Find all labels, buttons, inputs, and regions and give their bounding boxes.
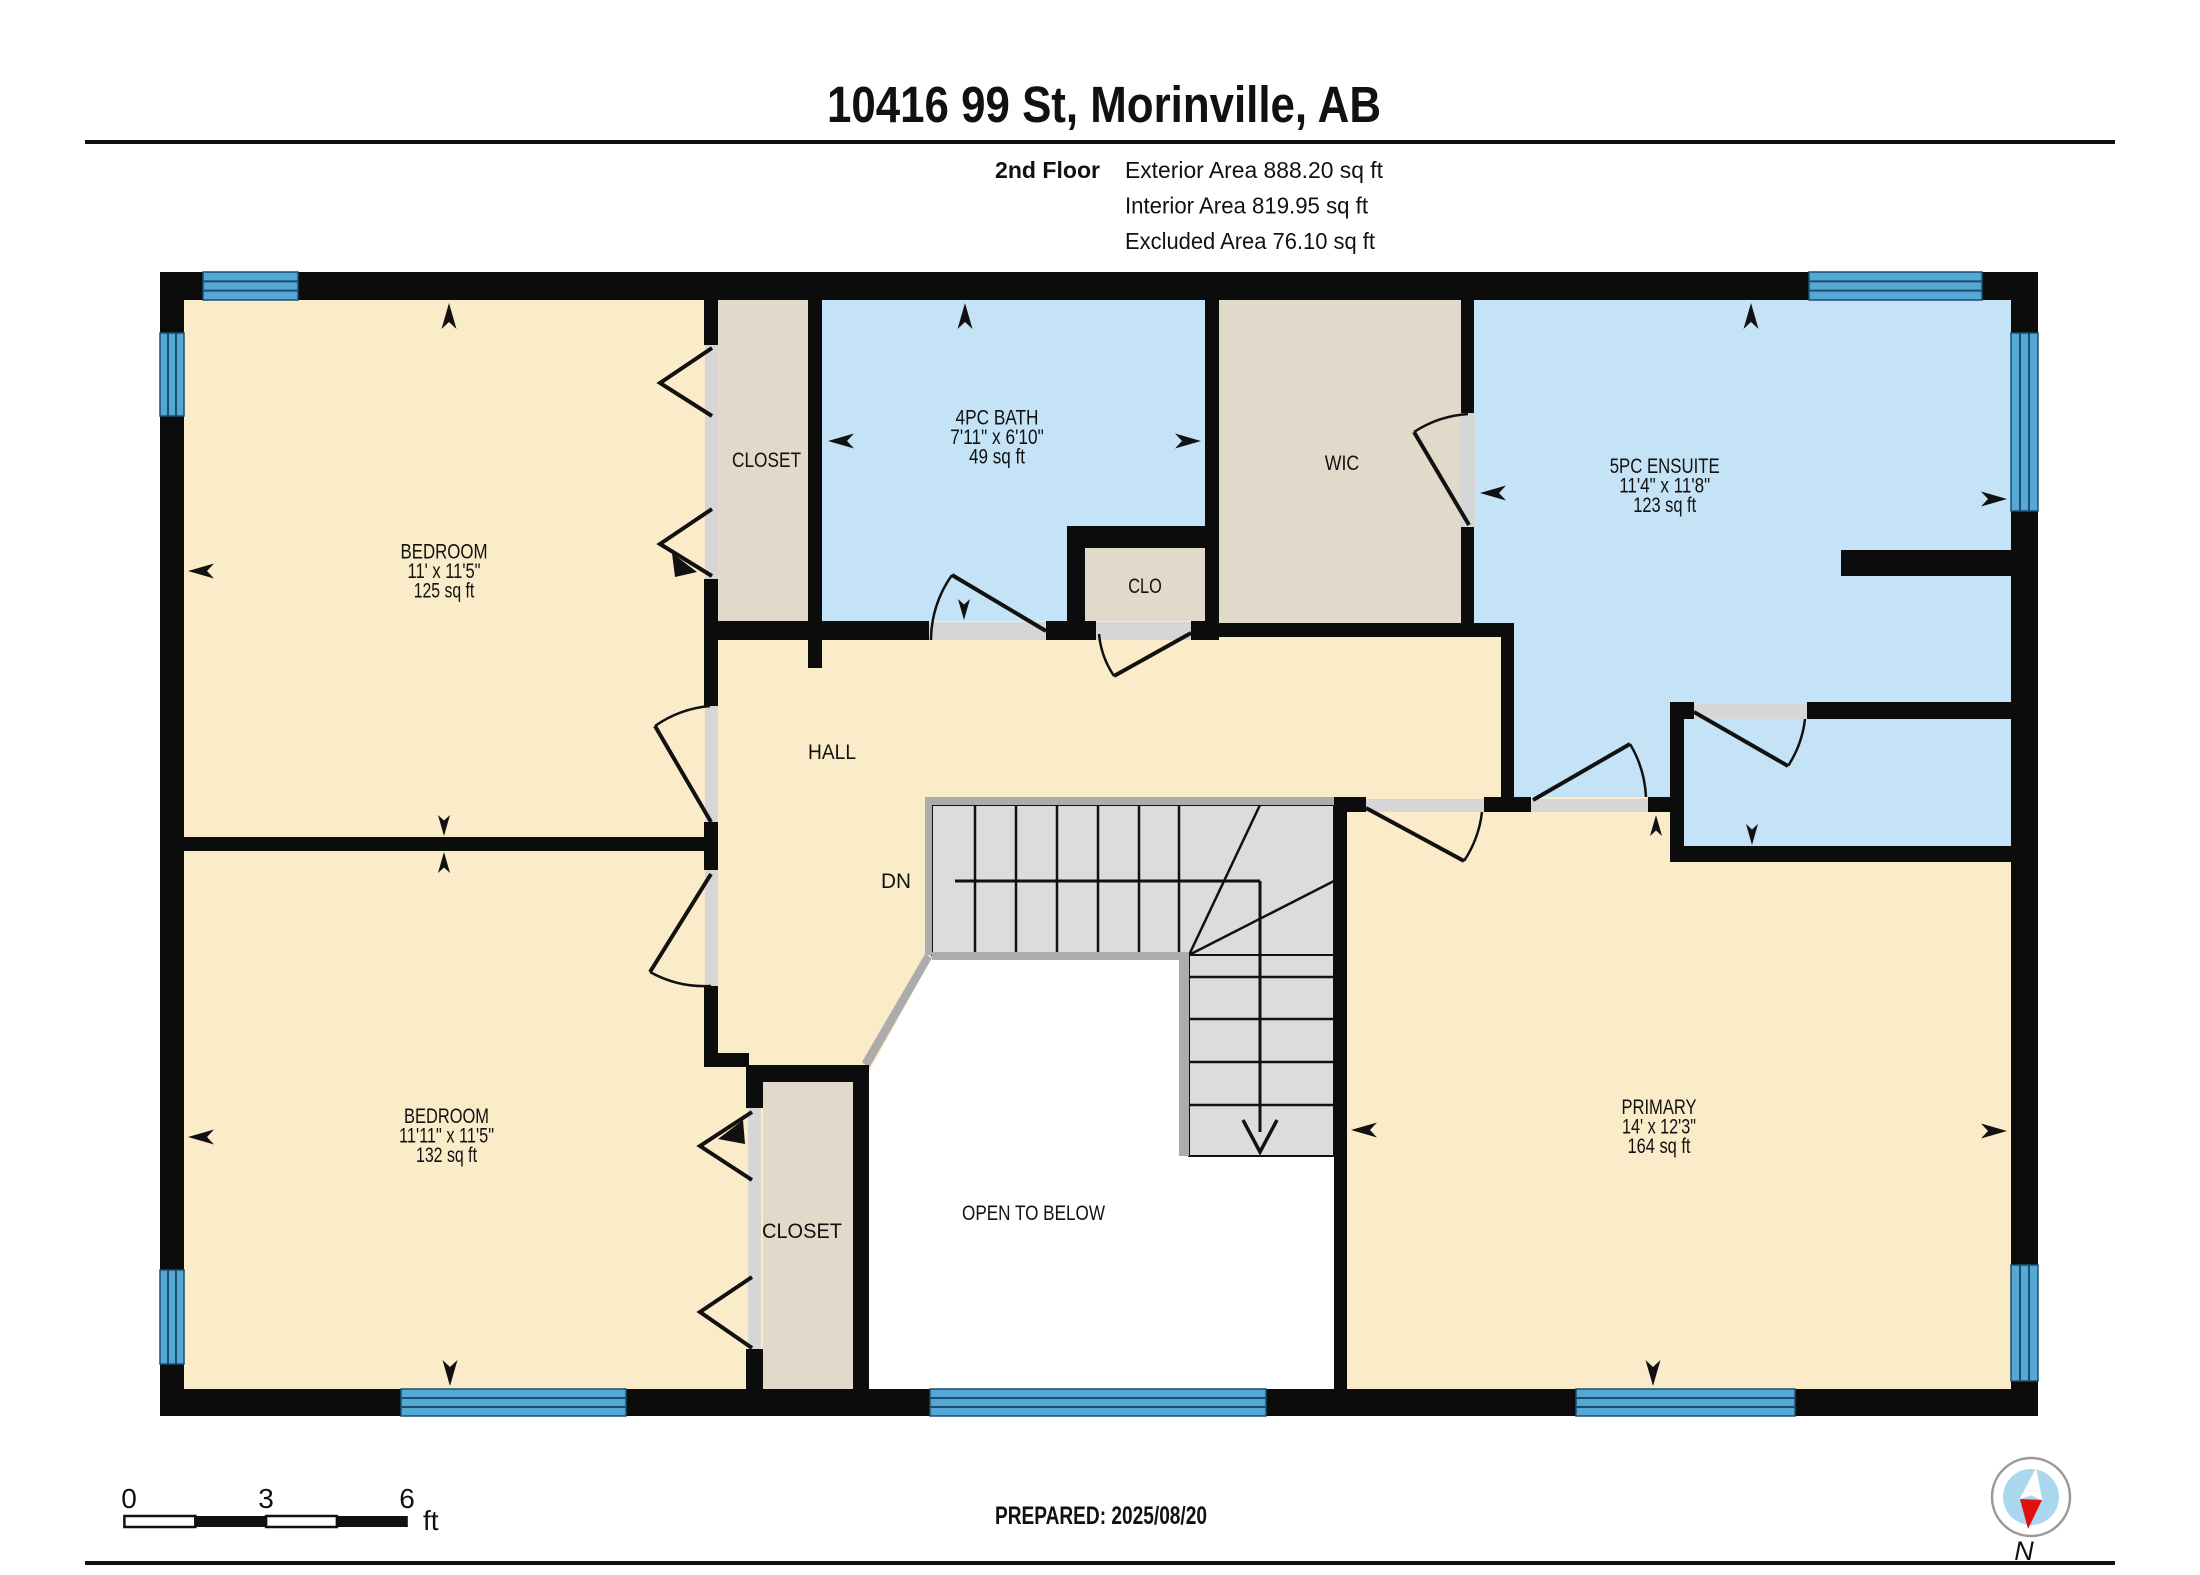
svg-text:123 sq ft: 123 sq ft: [1633, 493, 1696, 517]
svg-text:CLO: CLO: [1128, 574, 1162, 598]
svg-text:164 sq ft: 164 sq ft: [1628, 1134, 1691, 1158]
svg-text:HALL: HALL: [808, 740, 856, 764]
svg-text:DN: DN: [881, 869, 911, 893]
svg-text:132 sq ft: 132 sq ft: [416, 1143, 477, 1167]
svg-text:WIC: WIC: [1325, 451, 1360, 475]
svg-text:OPEN TO BELOW: OPEN TO BELOW: [962, 1201, 1106, 1225]
svg-text:0: 0: [121, 1483, 137, 1514]
svg-text:Interior Area 819.95 sq ft: Interior Area 819.95 sq ft: [1125, 193, 1368, 219]
svg-text:Exterior Area 888.20 sq ft: Exterior Area 888.20 sq ft: [1125, 157, 1383, 183]
svg-text:Excluded Area 76.10 sq ft: Excluded Area 76.10 sq ft: [1125, 228, 1375, 254]
svg-text:CLOSET: CLOSET: [732, 448, 801, 472]
svg-text:6: 6: [399, 1483, 415, 1514]
svg-text:PREPARED: 2025/08/20: PREPARED: 2025/08/20: [995, 1502, 1207, 1530]
svg-text:49 sq ft: 49 sq ft: [969, 444, 1025, 468]
svg-text:CLOSET: CLOSET: [762, 1219, 842, 1243]
svg-text:125 sq ft: 125 sq ft: [414, 578, 475, 602]
svg-text:3: 3: [258, 1483, 274, 1514]
svg-text:10416 99 St, Morinville, AB: 10416 99 St, Morinville, AB: [827, 76, 1381, 133]
svg-text:ft: ft: [423, 1505, 439, 1536]
svg-text:2nd Floor: 2nd Floor: [995, 157, 1100, 183]
